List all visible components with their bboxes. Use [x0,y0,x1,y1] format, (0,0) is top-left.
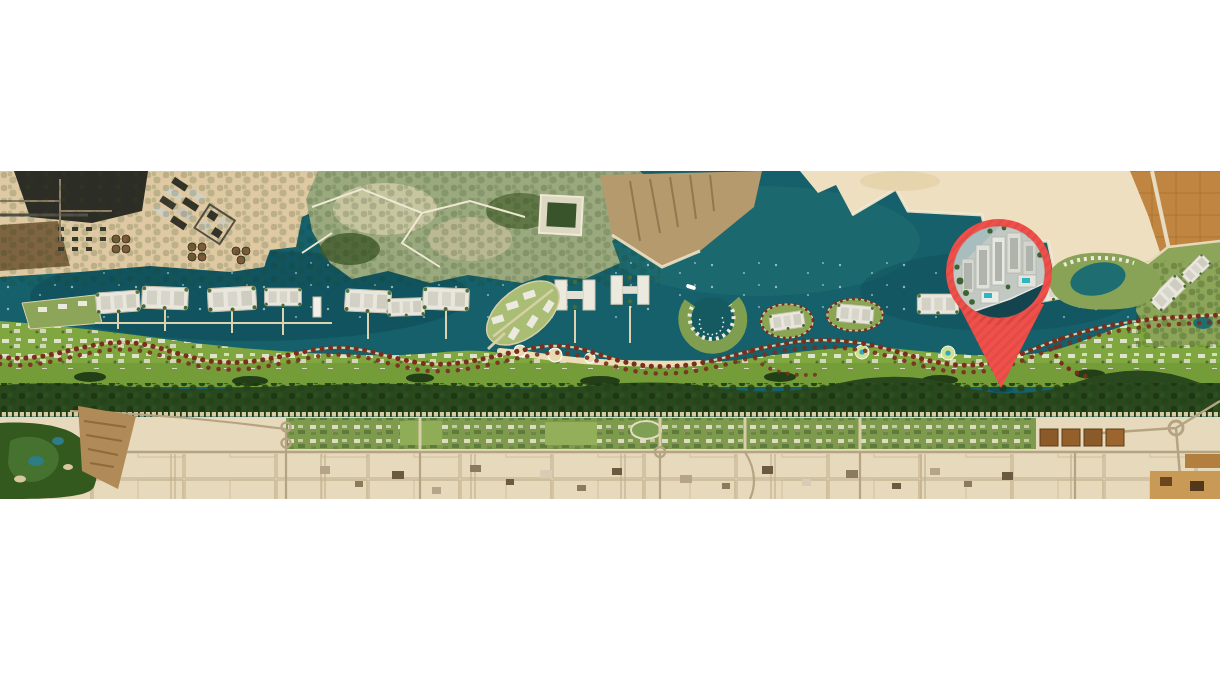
mangrove-island [0,171,762,286]
plaza-circle-2 [548,348,562,362]
page-background: { "page": { "background_color": "#ffffff… [0,0,1220,673]
community-field-2 [545,422,597,445]
pool [984,293,992,298]
sand-shading [860,171,940,191]
tower-building [313,297,321,317]
pool-2 [1022,278,1030,283]
tree-lined-street [0,412,1220,417]
desert-plot-grid-2 [0,454,1220,499]
sand-bunker-2 [63,464,73,470]
sports-oval [631,421,661,439]
sand-bunker [14,476,26,483]
garden-island-a [761,304,813,338]
island-compound [539,195,583,235]
golf-pond [28,456,44,466]
dense-tree-texture [0,383,1220,412]
masterplan-map [0,171,1220,499]
golf-pond-2 [52,437,64,445]
fountain-pool-2 [945,350,950,355]
garden-island-b [827,299,883,331]
masterplan-map-canvas [0,171,1220,499]
